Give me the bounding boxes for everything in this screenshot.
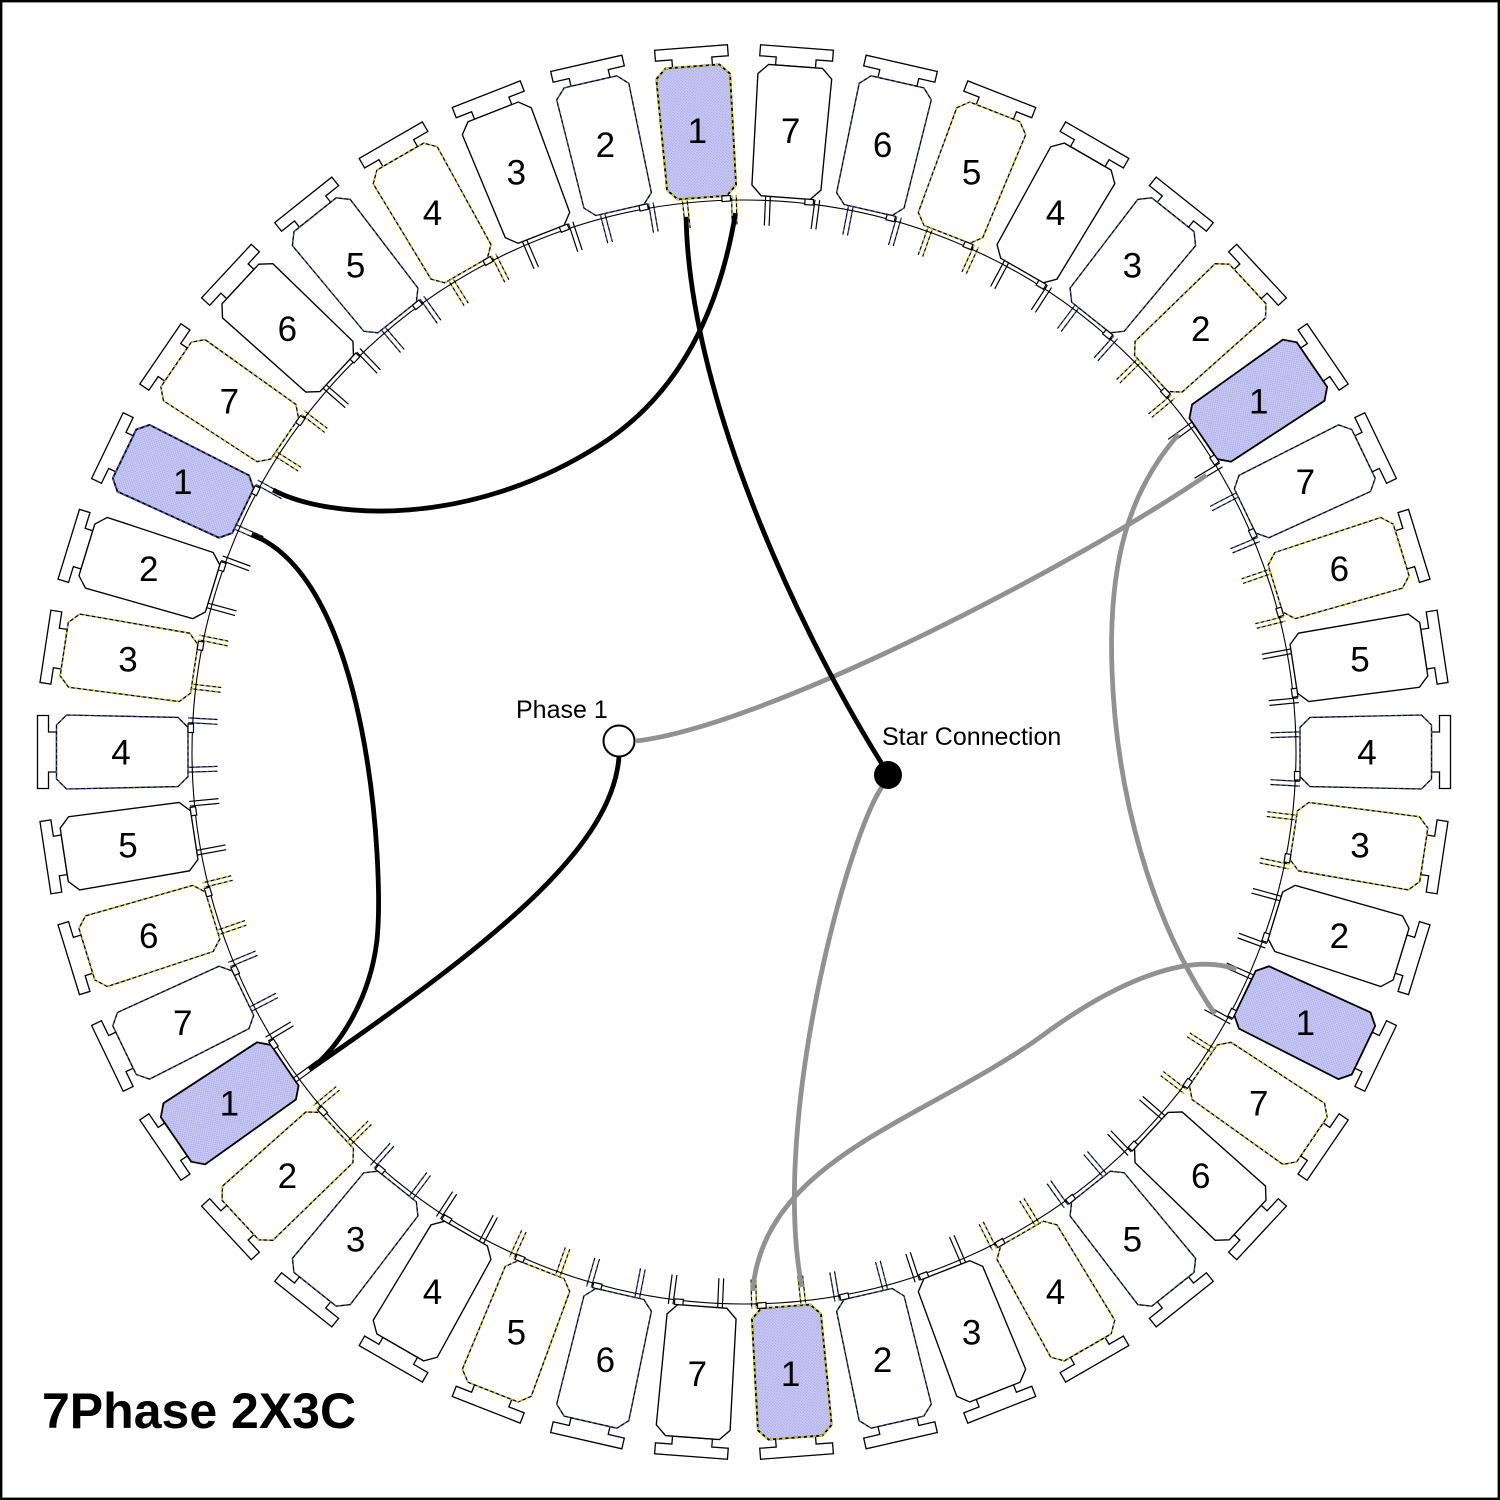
svg-text:2: 2 [1330,917,1349,956]
svg-text:4: 4 [423,1273,442,1312]
svg-text:6: 6 [1330,550,1349,589]
svg-text:1: 1 [173,463,192,502]
svg-text:4: 4 [423,194,442,233]
svg-text:3: 3 [1123,246,1142,285]
svg-text:7: 7 [173,1004,192,1043]
svg-text:4: 4 [1046,194,1065,233]
svg-text:7: 7 [1296,463,1315,502]
svg-text:5: 5 [962,154,981,193]
svg-text:1: 1 [1296,1004,1315,1043]
svg-text:5: 5 [1123,1221,1142,1260]
svg-text:6: 6 [278,310,297,349]
svg-text:4: 4 [111,734,130,773]
svg-text:6: 6 [1191,1157,1210,1196]
svg-text:3: 3 [962,1313,981,1352]
svg-text:1: 1 [220,1084,239,1123]
svg-text:5: 5 [507,1313,526,1352]
svg-text:3: 3 [118,641,137,680]
svg-text:7: 7 [220,383,239,422]
svg-text:1: 1 [1249,383,1268,422]
svg-text:1: 1 [688,112,707,151]
svg-text:6: 6 [873,126,892,165]
svg-text:3: 3 [346,1221,365,1260]
svg-text:3: 3 [507,154,526,193]
svg-text:2: 2 [596,126,615,165]
svg-text:7: 7 [688,1355,707,1394]
svg-text:6: 6 [139,917,158,956]
svg-text:3: 3 [1350,826,1369,865]
svg-text:5: 5 [118,826,137,865]
svg-text:Star Connection: Star Connection [882,723,1061,751]
svg-text:5: 5 [346,246,365,285]
svg-text:1: 1 [781,1355,800,1394]
svg-text:4: 4 [1357,734,1376,773]
svg-text:7Phase 2X3C: 7Phase 2X3C [42,1383,356,1439]
svg-text:2: 2 [139,550,158,589]
svg-text:5: 5 [1350,641,1369,680]
svg-text:Phase 1: Phase 1 [516,696,608,724]
svg-text:6: 6 [596,1341,615,1380]
svg-text:2: 2 [873,1341,892,1380]
svg-text:4: 4 [1046,1273,1065,1312]
svg-text:2: 2 [1191,310,1210,349]
svg-text:2: 2 [278,1157,297,1196]
svg-text:7: 7 [781,112,800,151]
svg-text:7: 7 [1249,1084,1268,1123]
